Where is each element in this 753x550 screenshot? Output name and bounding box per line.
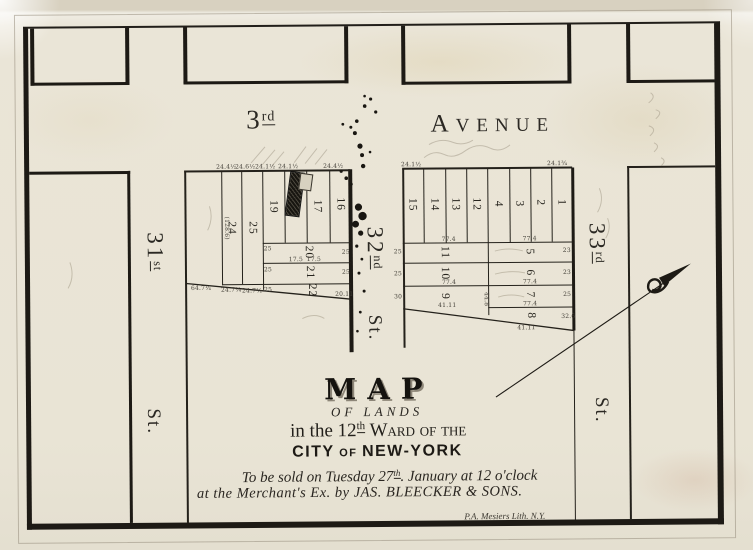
street-label-31st-st: St. bbox=[142, 408, 164, 435]
dimension-label: 24.6½ bbox=[235, 163, 255, 170]
street-label-33rd-st: St. bbox=[590, 397, 612, 424]
pencil-annotations bbox=[67, 93, 666, 321]
lot-number: 4 bbox=[492, 201, 504, 208]
dimension-label: 25 bbox=[563, 291, 571, 298]
dimension-label: 23 bbox=[563, 247, 571, 254]
right-block-bottom-slope bbox=[403, 307, 573, 331]
lot-number: 6 bbox=[524, 269, 536, 276]
lot-number: 17 bbox=[311, 200, 323, 214]
map-scan: 3rd AVENUE 31st St. 32nd St. 33rd St. 24… bbox=[0, 0, 753, 550]
lot-number: 15 bbox=[406, 198, 418, 212]
lot-number: 13 bbox=[449, 198, 461, 212]
dimension-label: 41.11 bbox=[438, 302, 456, 309]
lot-number: 22 bbox=[306, 284, 318, 298]
dimension-label: 64.7¼ bbox=[191, 285, 211, 292]
dimension-label: 24.4½ bbox=[323, 163, 343, 170]
lot-number: 11 bbox=[439, 246, 451, 259]
lot-number: 8 bbox=[525, 312, 537, 319]
street-label-32nd-st: St. bbox=[363, 315, 385, 342]
dimension-label: 25 bbox=[394, 248, 402, 255]
lot-number: 12 bbox=[470, 197, 482, 211]
dimension-label: 41.11 bbox=[517, 324, 535, 331]
map-subtitle-ward: in the 12th Ward of the bbox=[290, 419, 466, 442]
map-title: MAP bbox=[324, 372, 434, 407]
dimension-label: 24.7¼ bbox=[221, 287, 241, 294]
street-label-32nd: 32nd bbox=[362, 226, 388, 269]
dimension-label: 25 bbox=[342, 269, 350, 276]
dimension-label: 44.8 bbox=[483, 292, 490, 306]
lot-number: 5 bbox=[524, 248, 536, 255]
lot-number: 21 bbox=[304, 266, 316, 280]
lot-number: 1 bbox=[555, 199, 567, 206]
avenue-rest: VENUE bbox=[456, 115, 556, 137]
street-label-31st: 31st bbox=[142, 232, 168, 271]
sale-notice-line2: at the Merchant's Ex. by JAS. BLEECKER &… bbox=[197, 483, 523, 503]
map-sheet: 3rd AVENUE 31st St. 32nd St. 33rd St. 24… bbox=[0, 0, 753, 550]
dimension-label: 77.4 bbox=[442, 236, 456, 243]
lot-number: 25 bbox=[247, 221, 259, 235]
lot-number: 9 bbox=[439, 293, 451, 300]
dimension-label: 17.5 bbox=[289, 256, 303, 263]
dimension-label: 77.4 bbox=[523, 235, 537, 242]
dimension-label: 24.1½ bbox=[278, 163, 298, 170]
avenue-initial: A bbox=[430, 110, 455, 137]
dimension-label: 25 bbox=[264, 286, 272, 293]
dimension-label: 24.1½ bbox=[401, 161, 421, 168]
street-label-avenue: AVENUE bbox=[430, 110, 555, 139]
dimension-label: 77.4 bbox=[442, 279, 456, 286]
dimension-label: 23 bbox=[563, 269, 571, 276]
dimension-label: 77.4 bbox=[523, 300, 537, 307]
dimension-label: 77.4 bbox=[523, 278, 537, 285]
lot-number: 19 bbox=[267, 200, 279, 214]
dimension-label: 25 bbox=[394, 270, 402, 277]
lithographer-imprint: P.A. Mesiers Lith. N.Y. bbox=[464, 511, 545, 522]
street-number: 3 bbox=[246, 104, 262, 134]
dimension-label: 24.4½ bbox=[216, 164, 236, 171]
dimension-label: 24.7½ bbox=[242, 287, 262, 294]
street-label-33rd: 33rd bbox=[584, 223, 610, 264]
dimension-label: 24.1½ bbox=[255, 163, 275, 170]
street-suffix: rd bbox=[262, 109, 276, 125]
dimension-label: 25 bbox=[264, 245, 272, 252]
dimension-label: 24.1¾ bbox=[547, 160, 567, 167]
dimension-label: 17.5 bbox=[307, 256, 321, 263]
lot-number: 14 bbox=[428, 198, 440, 212]
dimension-label: 25 bbox=[342, 249, 350, 256]
dimension-label: (128.6) bbox=[223, 217, 230, 240]
street-label-3rd: 3rd bbox=[246, 104, 275, 135]
lot-number: 16 bbox=[334, 197, 346, 211]
dimension-label: 25 bbox=[264, 266, 272, 273]
map-subtitle-of-lands: OF LANDS bbox=[331, 404, 423, 421]
dimension-label: 30 bbox=[394, 293, 402, 300]
map-subtitle-city: CITY OF NEW-YORK bbox=[292, 442, 463, 461]
dimension-label: 20.11 bbox=[335, 291, 353, 298]
lot-number: 7 bbox=[524, 291, 536, 298]
dimension-label: 32.6 bbox=[561, 313, 575, 320]
lot-number: 2 bbox=[534, 199, 546, 206]
lot-number: 3 bbox=[513, 200, 525, 207]
